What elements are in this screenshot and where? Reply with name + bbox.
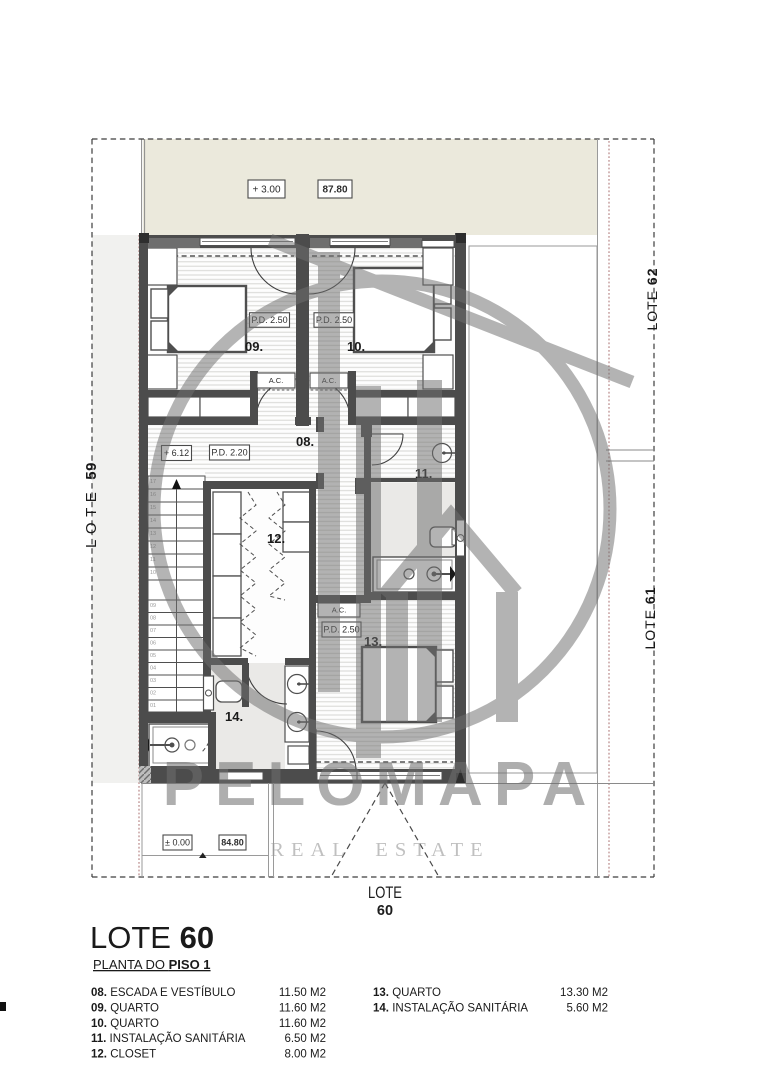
svg-text:13.30 M2: 13.30 M2 [560, 987, 608, 999]
svg-text:P.D. 2.20: P.D. 2.20 [211, 448, 247, 458]
svg-text:09.: 09. [245, 339, 263, 354]
svg-text:09. QUARTO: 09. QUARTO [91, 1002, 159, 1014]
svg-text:08: 08 [150, 616, 156, 622]
svg-text:84.80: 84.80 [221, 838, 244, 848]
svg-text:LOTE: LOTE [368, 884, 402, 902]
svg-text:± 0.00: ± 0.00 [165, 838, 190, 848]
svg-text:PELOMAPA: PELOMAPA [163, 750, 598, 819]
svg-text:A.C.: A.C. [269, 376, 284, 385]
svg-text:06: 06 [150, 641, 156, 647]
svg-text:PLANTA DO PISO 1: PLANTA DO PISO 1 [93, 957, 211, 972]
svg-text:13. QUARTO: 13. QUARTO [373, 987, 441, 999]
svg-text:14.: 14. [225, 709, 243, 724]
svg-text:8.00 M2: 8.00 M2 [284, 1049, 326, 1061]
svg-text:5.60 M2: 5.60 M2 [566, 1002, 608, 1014]
svg-text:11.50 M2: 11.50 M2 [279, 987, 326, 999]
svg-text:12. CLOSET: 12. CLOSET [91, 1049, 156, 1061]
svg-text:6.50 M2: 6.50 M2 [284, 1033, 326, 1045]
svg-text:09: 09 [150, 603, 156, 609]
svg-text:10. QUARTO: 10. QUARTO [91, 1018, 159, 1030]
svg-text:LOTE 61: LOTE 61 [642, 586, 658, 649]
svg-text:10.: 10. [347, 339, 365, 354]
svg-text:LOTE59: LOTE59 [83, 462, 100, 548]
svg-text:11.60 M2: 11.60 M2 [279, 1018, 326, 1030]
svg-text:01: 01 [150, 703, 156, 709]
svg-text:07: 07 [150, 628, 156, 634]
svg-text:14. INSTALAÇÃO SANITÁRIA: 14. INSTALAÇÃO SANITÁRIA [373, 1001, 528, 1014]
svg-text:60: 60 [377, 903, 393, 919]
svg-text:LOTE 60: LOTE 60 [90, 920, 214, 955]
svg-text:03: 03 [150, 678, 156, 684]
svg-text:05: 05 [150, 653, 156, 659]
svg-text:08.: 08. [296, 434, 314, 449]
svg-text:04: 04 [150, 666, 156, 672]
svg-text:87.80: 87.80 [322, 185, 347, 196]
svg-text:REAL ESTATE: REAL ESTATE [270, 839, 489, 861]
svg-text:11.60 M2: 11.60 M2 [279, 1002, 326, 1014]
svg-text:02: 02 [150, 691, 156, 697]
svg-text:08. ESCADA E VESTÍBULO: 08. ESCADA E VESTÍBULO [91, 986, 236, 999]
svg-text:LOTE 62: LOTE 62 [644, 267, 660, 330]
svg-text:12.: 12. [267, 531, 285, 546]
svg-text:10: 10 [150, 570, 156, 576]
svg-text:11. INSTALAÇÃO SANITÁRIA: 11. INSTALAÇÃO SANITÁRIA [91, 1032, 246, 1045]
svg-text:+ 3.00: + 3.00 [252, 185, 281, 196]
